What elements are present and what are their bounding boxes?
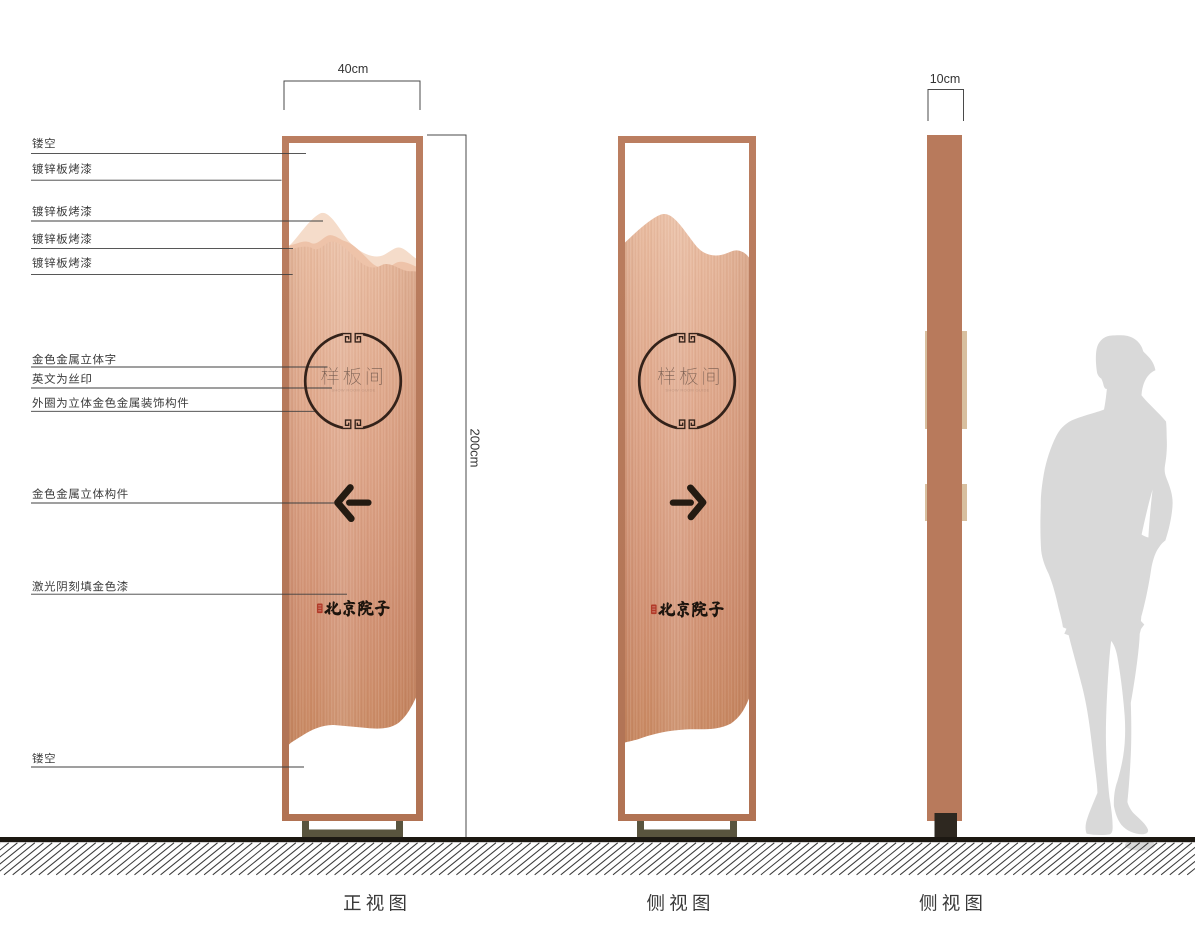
svg-text:SHOW ROOM GUIDE: SHOW ROOM GUIDE: [665, 388, 709, 393]
svg-text:40cm: 40cm: [338, 62, 369, 76]
svg-text:10cm: 10cm: [930, 72, 961, 86]
svg-text:SHOW ROOM GUIDE: SHOW ROOM GUIDE: [331, 388, 375, 393]
svg-text:200cm: 200cm: [468, 428, 483, 467]
